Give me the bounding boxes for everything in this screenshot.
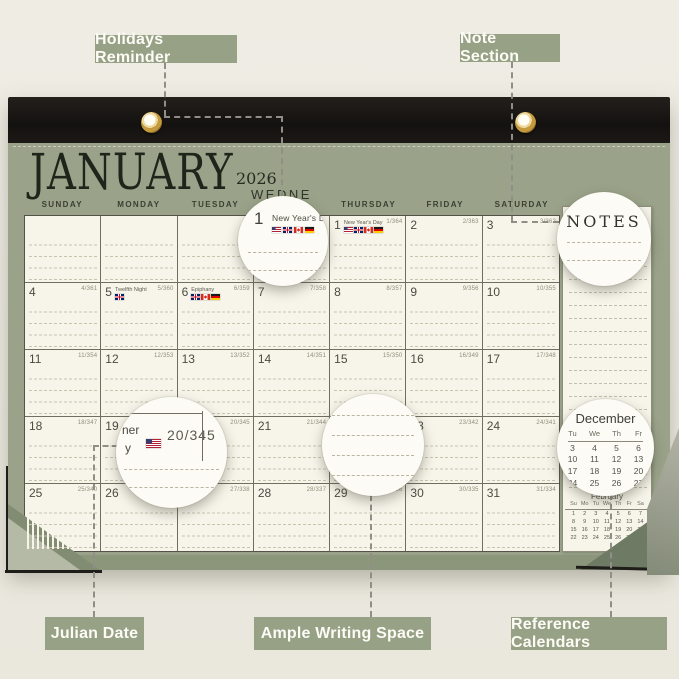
connector-note-horizontal [511,221,559,223]
date-number: 25 [29,487,42,499]
writing-line [248,270,318,271]
calendar-cell [25,216,101,283]
writing-lines [256,502,327,549]
writing-line [332,475,414,476]
writing-line [248,252,318,253]
connector-holidays-vertical [164,63,166,116]
writing-lines [485,234,557,280]
weekday-abbr: Tu [590,501,601,509]
calendar-cell [101,216,177,283]
writing-lines [485,301,557,347]
julian-date: 30/335 [459,487,479,493]
date-number: 1 [334,219,341,231]
date-number: 13 [624,519,635,527]
magnified-holiday-name: New Year's Day [272,213,328,223]
cell-header: 1313/352 [178,350,253,365]
weekday-header: TUESDAY [177,200,254,209]
julian-date: 11/354 [78,353,97,359]
cell-header: 2424/341 [483,417,559,432]
weekday-abbr: We [587,429,603,440]
date-number: 25 [587,478,603,490]
julian-date: 2/363 [463,219,479,225]
cell-header: 33/362 [483,216,559,231]
julian-date: 31/334 [536,487,556,493]
date-number: 18 [587,466,603,478]
writing-line [124,469,219,470]
weekday-header: SATURDAY [483,200,560,209]
cell-header [25,216,100,219]
writing-lines [332,301,403,347]
notes-heading: NOTES [557,212,651,231]
julian-date: 1/364 [386,219,402,225]
holiday-name: New Year's Day [344,220,383,226]
weekday-abbr: Su [568,501,579,509]
connector-julian-horizontal [93,445,118,447]
cell-header: 1818/347 [25,417,100,432]
date-number: 15 [334,353,347,365]
cell-header: 1515/350 [330,350,405,365]
julian-date: 28/337 [307,487,327,493]
writing-lines [27,234,98,280]
calendar-cell: 44/361 [25,283,101,350]
date-number: 7 [635,511,646,519]
julian-date: 8/357 [386,286,402,292]
calendar-cell: 88/357 [330,283,406,350]
weekday-header: MONDAY [101,200,178,209]
magnifier-december-calendar: December TuWeThFr34561011121317181920242… [557,399,654,496]
grommet-icon [515,112,536,133]
leather-binding-strip [8,97,670,143]
weekday-abbr: Tu [565,429,581,440]
uk-flag-icon [191,294,200,300]
writing-lines [485,435,557,481]
date-number: 12 [105,353,118,365]
writing-line [124,487,219,488]
cell-header: 5Twelfth Night5/360 [101,283,176,300]
cell-header: 44/361 [25,283,100,298]
flag-row [344,227,383,233]
holiday-block: New Year's Day [344,220,383,233]
date-number: 24 [565,478,581,490]
date-number: 4 [587,443,603,455]
writing-lines [408,301,479,347]
date-number: 1 [568,511,579,519]
date-number: 28 [258,487,271,499]
ca-flag-icon [201,294,210,300]
month-title: JANUARY [30,145,234,200]
calendar-cell: 77/358 [254,283,330,350]
connector-holidays-drop [281,116,283,196]
date-number: 9 [410,286,417,298]
cell-header: 1616/349 [406,350,481,365]
date-number: 5 [609,443,625,455]
cell-header [178,216,253,219]
date-number: 23 [579,535,590,543]
cell-header: 88/357 [330,283,405,298]
us-flag-icon [272,227,281,233]
calendar-cell: 3030/335 [406,484,482,551]
date-number: 12 [609,454,625,466]
date-number: 12 [613,519,624,527]
callout-holidays-reminder: Holidays Reminder [95,35,237,63]
date-number: 3 [590,511,601,519]
product-feature-image: Holidays Reminder Note Section Julian Da… [0,0,679,679]
calendar-cell: 1111/354 [25,350,101,417]
date-number: 2 [410,219,417,231]
magnified-flag-row [272,227,314,233]
pad-edge [5,570,102,573]
holiday-block: Twelfth Night [115,287,147,300]
date-number: 16 [410,353,423,365]
magnified-text-fragment: y [125,441,131,455]
writing-lines [103,301,174,347]
calendar-cell: 1414/351 [254,350,330,417]
cell-header: 1414/351 [254,350,329,365]
weekday-abbr: Th [613,501,624,509]
date-number: 26 [609,478,625,490]
weekday-abbr: Th [609,429,625,440]
magnified-julian-date: 20/345 [167,427,216,443]
writing-lines [408,368,479,414]
weekday-abbr: Fr [624,501,635,509]
grommet-icon [141,112,162,133]
writing-line [332,435,414,436]
date-number: 8 [334,286,341,298]
julian-date: 24/341 [536,420,556,426]
writing-lines [256,435,327,481]
date-number: 13 [631,454,647,466]
date-number: 17 [487,353,500,365]
julian-date: 9/356 [463,286,479,292]
date-number: 5 [613,511,624,519]
writing-lines [408,502,479,549]
writing-lines [103,234,174,280]
cell-header: 2828/337 [254,484,329,499]
julian-date: 13/352 [230,353,250,359]
cell-header: 1New Year's Day1/364 [330,216,405,233]
julian-date: 6/359 [234,286,250,292]
page-bottom-band [8,555,670,570]
uk-flag-icon [354,227,363,233]
date-number: 5 [105,286,112,298]
date-number: 11 [29,353,41,365]
february-week-row: 1234567 [565,511,649,519]
writing-lines [27,368,98,414]
magnified-day-number: 1 [254,209,263,229]
writing-line [567,242,641,243]
connector-julian-vertical [93,445,95,617]
cell-header: 2525/340 [25,484,100,499]
date-number: 3 [565,443,581,455]
uk-flag-icon [115,294,124,300]
date-number: 6 [624,511,635,519]
date-number: 19 [609,466,625,478]
cell-header: 1010/355 [483,283,559,298]
date-number: 15 [568,527,579,535]
date-number: 10 [487,286,500,298]
december-grid: TuWeThFr3456101112131718192024252627 [557,429,654,490]
us-flag-icon [146,439,161,448]
writing-lines [256,368,327,414]
weekday-abbr: Fr [631,429,647,440]
julian-date: 20/345 [230,420,250,426]
writing-lines [256,301,327,347]
julian-date: 4/361 [81,286,97,292]
weekday-header: SUNDAY [24,200,101,209]
cell-header: 77/358 [254,283,329,298]
writing-line [332,455,414,456]
calendar-cell: 6Epiphany6/359 [178,283,254,350]
cell-header: 3030/335 [406,484,481,499]
cell-header: 2121/344 [254,417,329,432]
cell-border-line [120,413,203,414]
calendar-cell: 1010/355 [483,283,559,350]
writing-lines [27,301,98,347]
date-number: 6 [631,443,647,455]
julian-date: 7/358 [310,286,326,292]
holiday-name: Twelfth Night [115,287,147,293]
date-number: 10 [590,519,601,527]
magnifier-writing-space [322,394,424,496]
date-number: 10 [565,454,581,466]
flag-row [191,294,220,300]
weekday-abbr: Sa [635,501,646,509]
december-week-row: 17181920 [557,466,654,478]
julian-date: 16/349 [459,353,479,359]
cell-header: 1111/354 [25,350,100,365]
calendar-cell: 33/362 [483,216,559,283]
date-number: 24 [487,420,500,432]
us-flag-icon [344,227,353,233]
cell-header [101,216,176,219]
calendar-cell: 1818/347 [25,417,101,484]
cell-header: 1717/348 [483,350,559,365]
date-number: 18 [29,420,42,432]
writing-lines [180,502,251,549]
calendar-cell: 2424/341 [483,417,559,484]
date-number: 13 [182,353,195,365]
date-number: 6 [182,286,189,298]
writing-lines [27,435,98,481]
calendar-cell: 1616/349 [406,350,482,417]
writing-lines [27,502,98,549]
year-label: 2026 [236,169,277,188]
december-header-row: TuWeThFr [557,429,654,440]
julian-date: 23/342 [459,420,479,426]
magnifier-julian-date: ner y 20/345 [116,397,227,508]
date-number: 2 [579,511,590,519]
ca-flag-icon [364,227,373,233]
date-number: 19 [105,420,118,432]
calendar-cell: 99/356 [406,283,482,350]
julian-date: 5/360 [158,286,174,292]
december-week-row: 10111213 [557,454,654,466]
date-number: 20 [631,466,647,478]
weekday-header: FRIDAY [407,200,484,209]
cell-border-line [202,411,203,461]
calendar-cell: 2828/337 [254,484,330,551]
callout-julian-date: Julian Date [45,617,144,650]
february-header-row: SuMoTuWeThFrSa [565,501,649,510]
writing-line [332,415,414,416]
weekday-abbr: Mo [579,501,590,509]
writing-lines [332,502,403,549]
date-number: 24 [590,535,601,543]
calendar-cell: 2121/344 [254,417,330,484]
date-number: 21 [258,420,271,432]
calendar-cell: 5Twelfth Night5/360 [101,283,177,350]
julian-date: 18/347 [78,420,98,426]
writing-lines [332,234,403,280]
callout-reference-calendars: Reference Calendars [511,617,667,650]
date-number: 3 [487,219,494,231]
writing-line [567,260,641,261]
cell-header: 22/363 [406,216,481,231]
calendar-cell: 1New Year's Day1/364 [330,216,406,283]
date-number: 29 [334,487,347,499]
date-number: 7 [258,286,265,298]
writing-lines [485,502,557,549]
julian-date: 15/350 [383,353,403,359]
cell-header: 6Epiphany6/359 [178,283,253,300]
magnifier-holiday: 1 New Year's Day [238,196,328,286]
de-flag-icon [305,227,314,233]
callout-ample-writing-space: Ample Writing Space [254,617,431,650]
ca-flag-icon [294,227,303,233]
connector-note-vertical [511,62,513,222]
holiday-block: Epiphany [191,287,220,300]
cell-header: 99/356 [406,283,481,298]
december-week-row: 24252627 [557,478,654,490]
calendar-cell: 1717/348 [483,350,559,417]
holiday-name: Epiphany [191,287,220,293]
magnifier-notes: NOTES [557,192,651,286]
julian-date: 14/351 [307,353,327,359]
uk-flag-icon [283,227,292,233]
december-title: December [557,411,654,426]
cell-header: 3131/334 [483,484,559,499]
december-week-row: 3456 [557,443,654,455]
writing-lines [180,301,251,347]
date-number: 14 [258,353,271,365]
date-number: 17 [565,466,581,478]
date-number: 9 [579,519,590,527]
desk-calendar-pad: JANUARY 2026 WEDNE SUNDAYMONDAYTUESDAYWE… [8,97,670,570]
magnified-text-fragment: ner [122,423,139,437]
date-number: 31 [487,487,500,499]
date-number: 27 [631,478,647,490]
julian-date: 10/355 [536,286,556,292]
date-number: 8 [568,519,579,527]
date-number: 22 [568,535,579,543]
pad-edge [6,466,8,572]
date-number: 16 [579,527,590,535]
calendar-cell: 3131/334 [483,484,559,551]
flag-row [115,294,147,300]
connector-reference-vertical [610,494,612,617]
writing-lines [485,368,557,414]
date-number: 30 [410,487,423,499]
de-flag-icon [374,227,383,233]
julian-date: 27/338 [230,487,250,493]
connector-holidays-horizontal [164,116,282,118]
calendar-cell: 2525/340 [25,484,101,551]
divider-line [568,441,644,442]
date-number: 11 [587,454,603,466]
weekday-header: THURSDAY [330,200,407,209]
de-flag-icon [211,294,220,300]
date-number: 4 [29,286,36,298]
calendar-cell: 22/363 [406,216,482,283]
cell-header: 1212/353 [101,350,176,365]
connector-ample-vertical [370,495,372,617]
writing-lines [408,234,479,280]
date-number: 19 [613,527,624,535]
writing-lines [103,502,174,549]
callout-note-section: Note Section [460,34,560,62]
julian-date: 21/344 [307,420,327,426]
february-week-row: 891011121314 [565,519,649,527]
date-number: 17 [590,527,601,535]
julian-date: 17/348 [536,353,556,359]
julian-date: 12/353 [154,353,174,359]
date-number: 26 [105,487,118,499]
